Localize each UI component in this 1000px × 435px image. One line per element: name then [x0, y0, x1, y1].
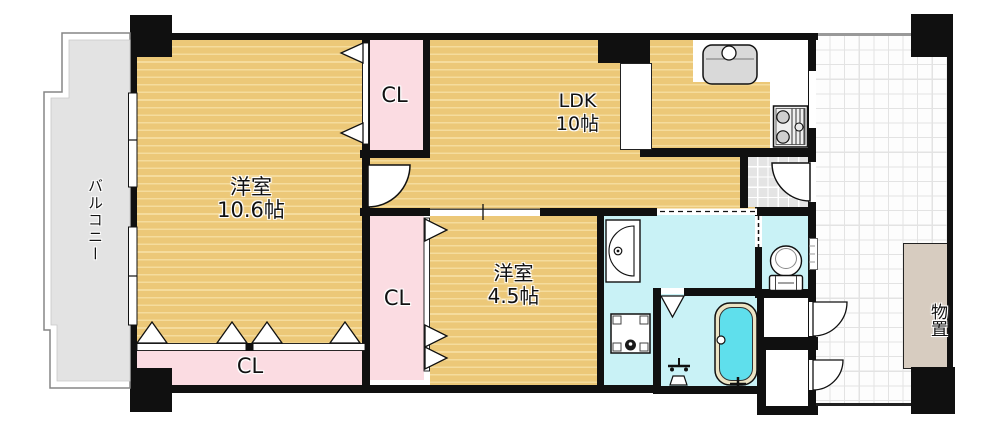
room-main-size: 10.6帖: [137, 199, 365, 222]
wall-closet-top-right: [423, 40, 430, 158]
washer-area-floor: [604, 288, 653, 385]
wall-top: [166, 33, 818, 40]
room-small-name: 洋室: [430, 262, 597, 285]
room-main-name: 洋室: [137, 176, 365, 199]
corridor-top-line: [818, 33, 911, 36]
washroom-floor: [604, 214, 755, 288]
kitchen-partition-stub: [598, 38, 650, 63]
pillar-bottom-right: [911, 367, 955, 414]
wall-room-small-right: [597, 215, 604, 393]
ldk-name: LDK: [505, 90, 650, 113]
wall-bath-closets-lower: [757, 345, 766, 414]
closet1-door-gap: [809, 302, 816, 336]
room-small-size: 4.5帖: [430, 285, 597, 308]
kitchen-window: [809, 70, 816, 129]
wall-kitchen-bottom: [640, 148, 813, 157]
kitchen-floor: [693, 40, 812, 82]
ldk-size: 10帖: [505, 113, 650, 136]
bathroom-floor: [661, 294, 757, 388]
wall-hall-bottom-left: [360, 208, 430, 216]
ldk-label: LDK 10帖: [505, 90, 650, 136]
wall-washroom-toilet: [755, 247, 762, 292]
closet-middle-label: CL: [370, 287, 424, 310]
entrance-floor: [748, 157, 810, 207]
wall-right-outer: [947, 57, 953, 414]
closet-bottom-label: CL: [170, 355, 330, 378]
corridor-bottom-line: [816, 403, 911, 406]
wall-bathroom-top: [684, 288, 757, 296]
balcony-label: バルコニー: [66, 150, 102, 290]
corridor-closet-1: [764, 298, 808, 337]
wall-bottom-main: [137, 385, 660, 393]
pillar-bottom-left: [130, 368, 172, 412]
wall-hall-bottom-right: [755, 207, 813, 216]
closet2-door-gap: [809, 360, 816, 390]
room-small-label: 洋室 4.5帖: [430, 262, 597, 308]
pillar-top-right: [911, 14, 953, 57]
toilet-window: [809, 238, 818, 270]
entrance-door-gap: [809, 162, 816, 202]
wall-left: [130, 40, 137, 385]
pillar-top-left: [130, 15, 172, 57]
toilet-room-floor: [762, 215, 808, 290]
wall-bathroom-bottom: [653, 386, 766, 394]
wall-below-closet-top: [360, 150, 430, 158]
wall-bath-closets-upper: [757, 292, 764, 345]
room-main-label: 洋室 10.6帖: [137, 176, 365, 222]
floor-plan: バルコニー 洋室 10.6帖 LDK 10帖 洋室 4.5帖 CL CL CL …: [0, 0, 1000, 435]
closet-top-label: CL: [366, 84, 423, 107]
wall-entrance-left: [740, 157, 748, 208]
corridor-closet-2: [766, 350, 808, 406]
storage-label: 物置: [905, 277, 945, 363]
wall-washer-bath: [653, 288, 661, 394]
kitchen-floor-side: [770, 82, 812, 148]
